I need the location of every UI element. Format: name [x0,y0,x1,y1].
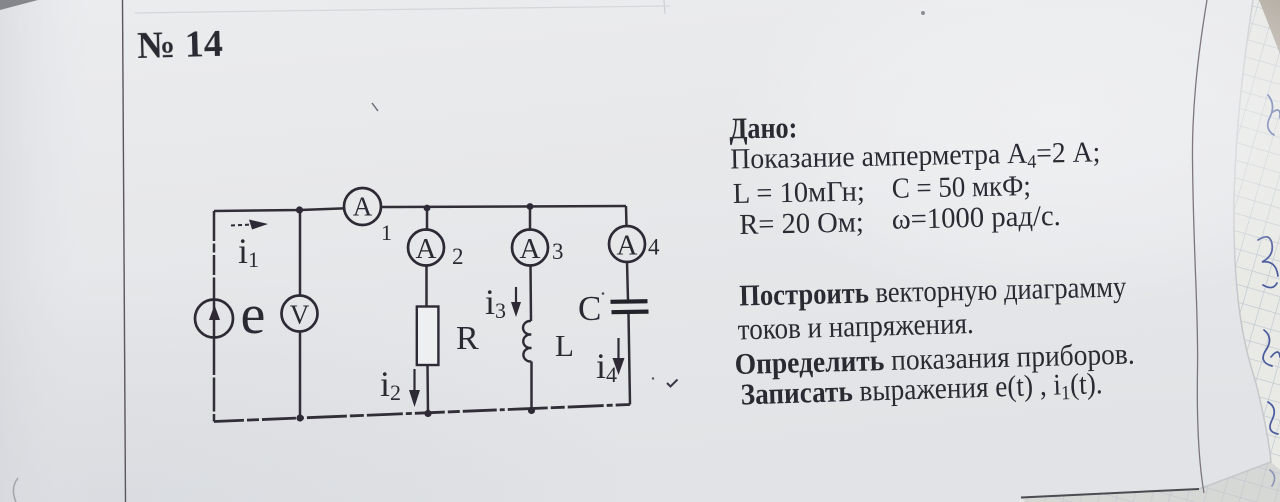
svg-text:3: 3 [552,239,564,264]
svg-text:C: C [578,289,601,328]
svg-text:A: A [416,233,437,265]
svg-text:Дано:: Дано: [729,111,798,145]
svg-text:R: R [456,320,479,357]
svg-text:С = 50 мкФ;: С = 50 мкФ; [892,170,1032,205]
svg-text:e: e [241,284,266,346]
svg-text:L = 10мГн;: L = 10мГн; [733,175,866,210]
svg-text:A: A [353,192,373,222]
svg-text:токов и напряжения.: токов и напряжения. [737,307,974,347]
svg-text:№ 14: № 14 [137,23,224,67]
svg-text:A: A [520,233,541,265]
svg-text:ω=1000 рад/с.: ω=1000 рад/с. [891,200,1061,236]
svg-text:V: V [290,300,310,330]
svg-text:2: 2 [452,244,464,269]
svg-text:4: 4 [648,235,660,260]
svg-text:1: 1 [381,220,392,245]
svg-text:R= 20 Ом;: R= 20 Ом; [739,206,864,241]
svg-text:A: A [617,230,638,262]
svg-text:L: L [555,328,574,363]
